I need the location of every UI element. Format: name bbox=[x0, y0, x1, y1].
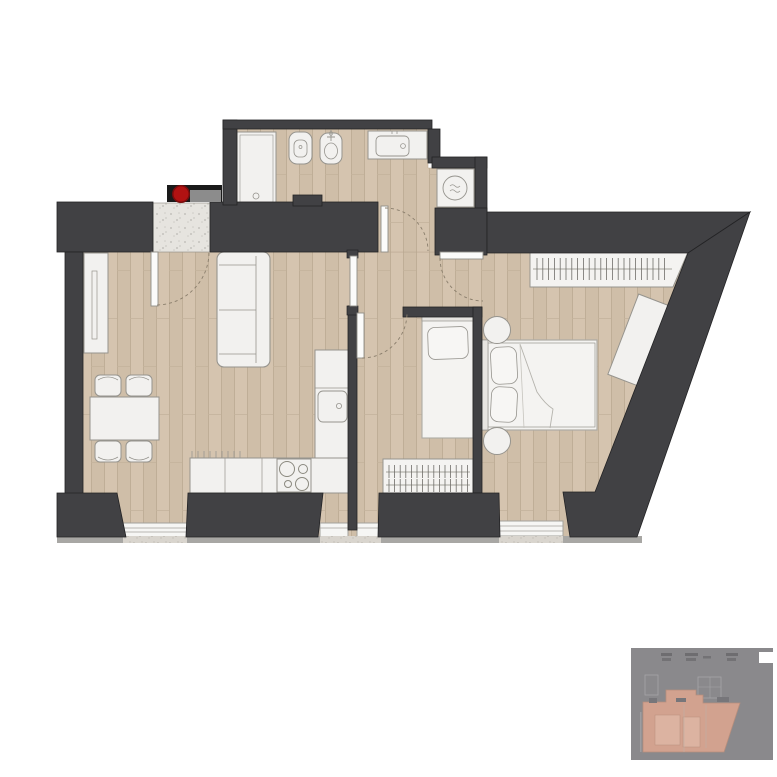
sideboard bbox=[84, 253, 108, 353]
wall-hall-corner-block bbox=[435, 208, 487, 255]
dining-chair bbox=[95, 375, 121, 396]
wall-top-mid-band bbox=[210, 202, 378, 252]
dining-chair bbox=[95, 441, 121, 462]
minimap-label-bar bbox=[685, 653, 698, 656]
wall-midroom-left bbox=[348, 306, 357, 530]
dining-chair bbox=[126, 441, 152, 462]
minimap-furniture-blob bbox=[717, 697, 729, 702]
wall-bathroom-chase bbox=[293, 195, 322, 206]
window-midroom bbox=[357, 523, 381, 537]
entrance-door-leaf bbox=[151, 252, 158, 306]
minimap-room bbox=[683, 717, 700, 747]
living-hall-door-leaf bbox=[350, 256, 357, 306]
washing-machine bbox=[437, 169, 474, 207]
nightstand bbox=[484, 428, 511, 455]
minimap-label-bar bbox=[703, 656, 711, 659]
toilet bbox=[289, 132, 312, 164]
wall-bathroom-left bbox=[223, 120, 237, 205]
single-bed-pillow bbox=[427, 326, 468, 359]
balcony-sill-speckle bbox=[123, 536, 187, 543]
entrance-marker-dot[interactable] bbox=[173, 186, 189, 202]
minimap-label-bar bbox=[726, 653, 738, 656]
kitchen-counter-bottom bbox=[190, 458, 350, 493]
minimap-edge-line bbox=[640, 712, 642, 752]
double-bed-pillow bbox=[490, 386, 518, 422]
minimap-room bbox=[655, 715, 680, 745]
midroom-door-leaf bbox=[357, 313, 364, 358]
balcony-sill-speckle bbox=[499, 536, 563, 543]
minimap-label-bar bbox=[686, 658, 696, 661]
bedroom-door-leaf bbox=[440, 252, 483, 259]
nightstand bbox=[484, 317, 511, 344]
balcony-sill-speckle bbox=[320, 536, 381, 543]
wall-pier-midroom bbox=[378, 493, 500, 537]
minimap-label-bar bbox=[662, 658, 671, 661]
wall-top-left-band bbox=[57, 202, 153, 252]
sofa bbox=[217, 252, 270, 367]
wall-left bbox=[65, 252, 83, 497]
door-jamb-nub bbox=[347, 306, 358, 315]
window-kitchen bbox=[320, 523, 348, 537]
minimap-furniture-blob bbox=[649, 698, 657, 703]
wall-bathroom-top bbox=[223, 120, 432, 129]
minimap-label-bar bbox=[661, 653, 672, 656]
window-bedroom bbox=[499, 521, 563, 536]
minimap-white-notch bbox=[759, 652, 777, 663]
window-living bbox=[123, 523, 187, 537]
double-bed-pillow bbox=[490, 346, 518, 384]
entrance-lintel-gray bbox=[190, 190, 221, 202]
wall-pier-left bbox=[57, 493, 126, 537]
shower-tray bbox=[237, 132, 276, 205]
floor-plan-svg bbox=[0, 0, 777, 777]
bathroom-door-leaf bbox=[381, 206, 388, 252]
minimap-label-bar bbox=[727, 658, 736, 661]
wall-midroom-right bbox=[473, 307, 482, 493]
entrance-tile bbox=[153, 203, 210, 252]
floor-plan-viewer bbox=[0, 0, 777, 777]
dining-table bbox=[90, 397, 159, 440]
wall-niche-right bbox=[475, 157, 487, 212]
wall-midroom-top bbox=[403, 307, 482, 317]
wall-pier-kitchen bbox=[186, 493, 323, 537]
minimap-furniture-blob bbox=[676, 698, 686, 702]
dining-chair bbox=[126, 375, 152, 396]
